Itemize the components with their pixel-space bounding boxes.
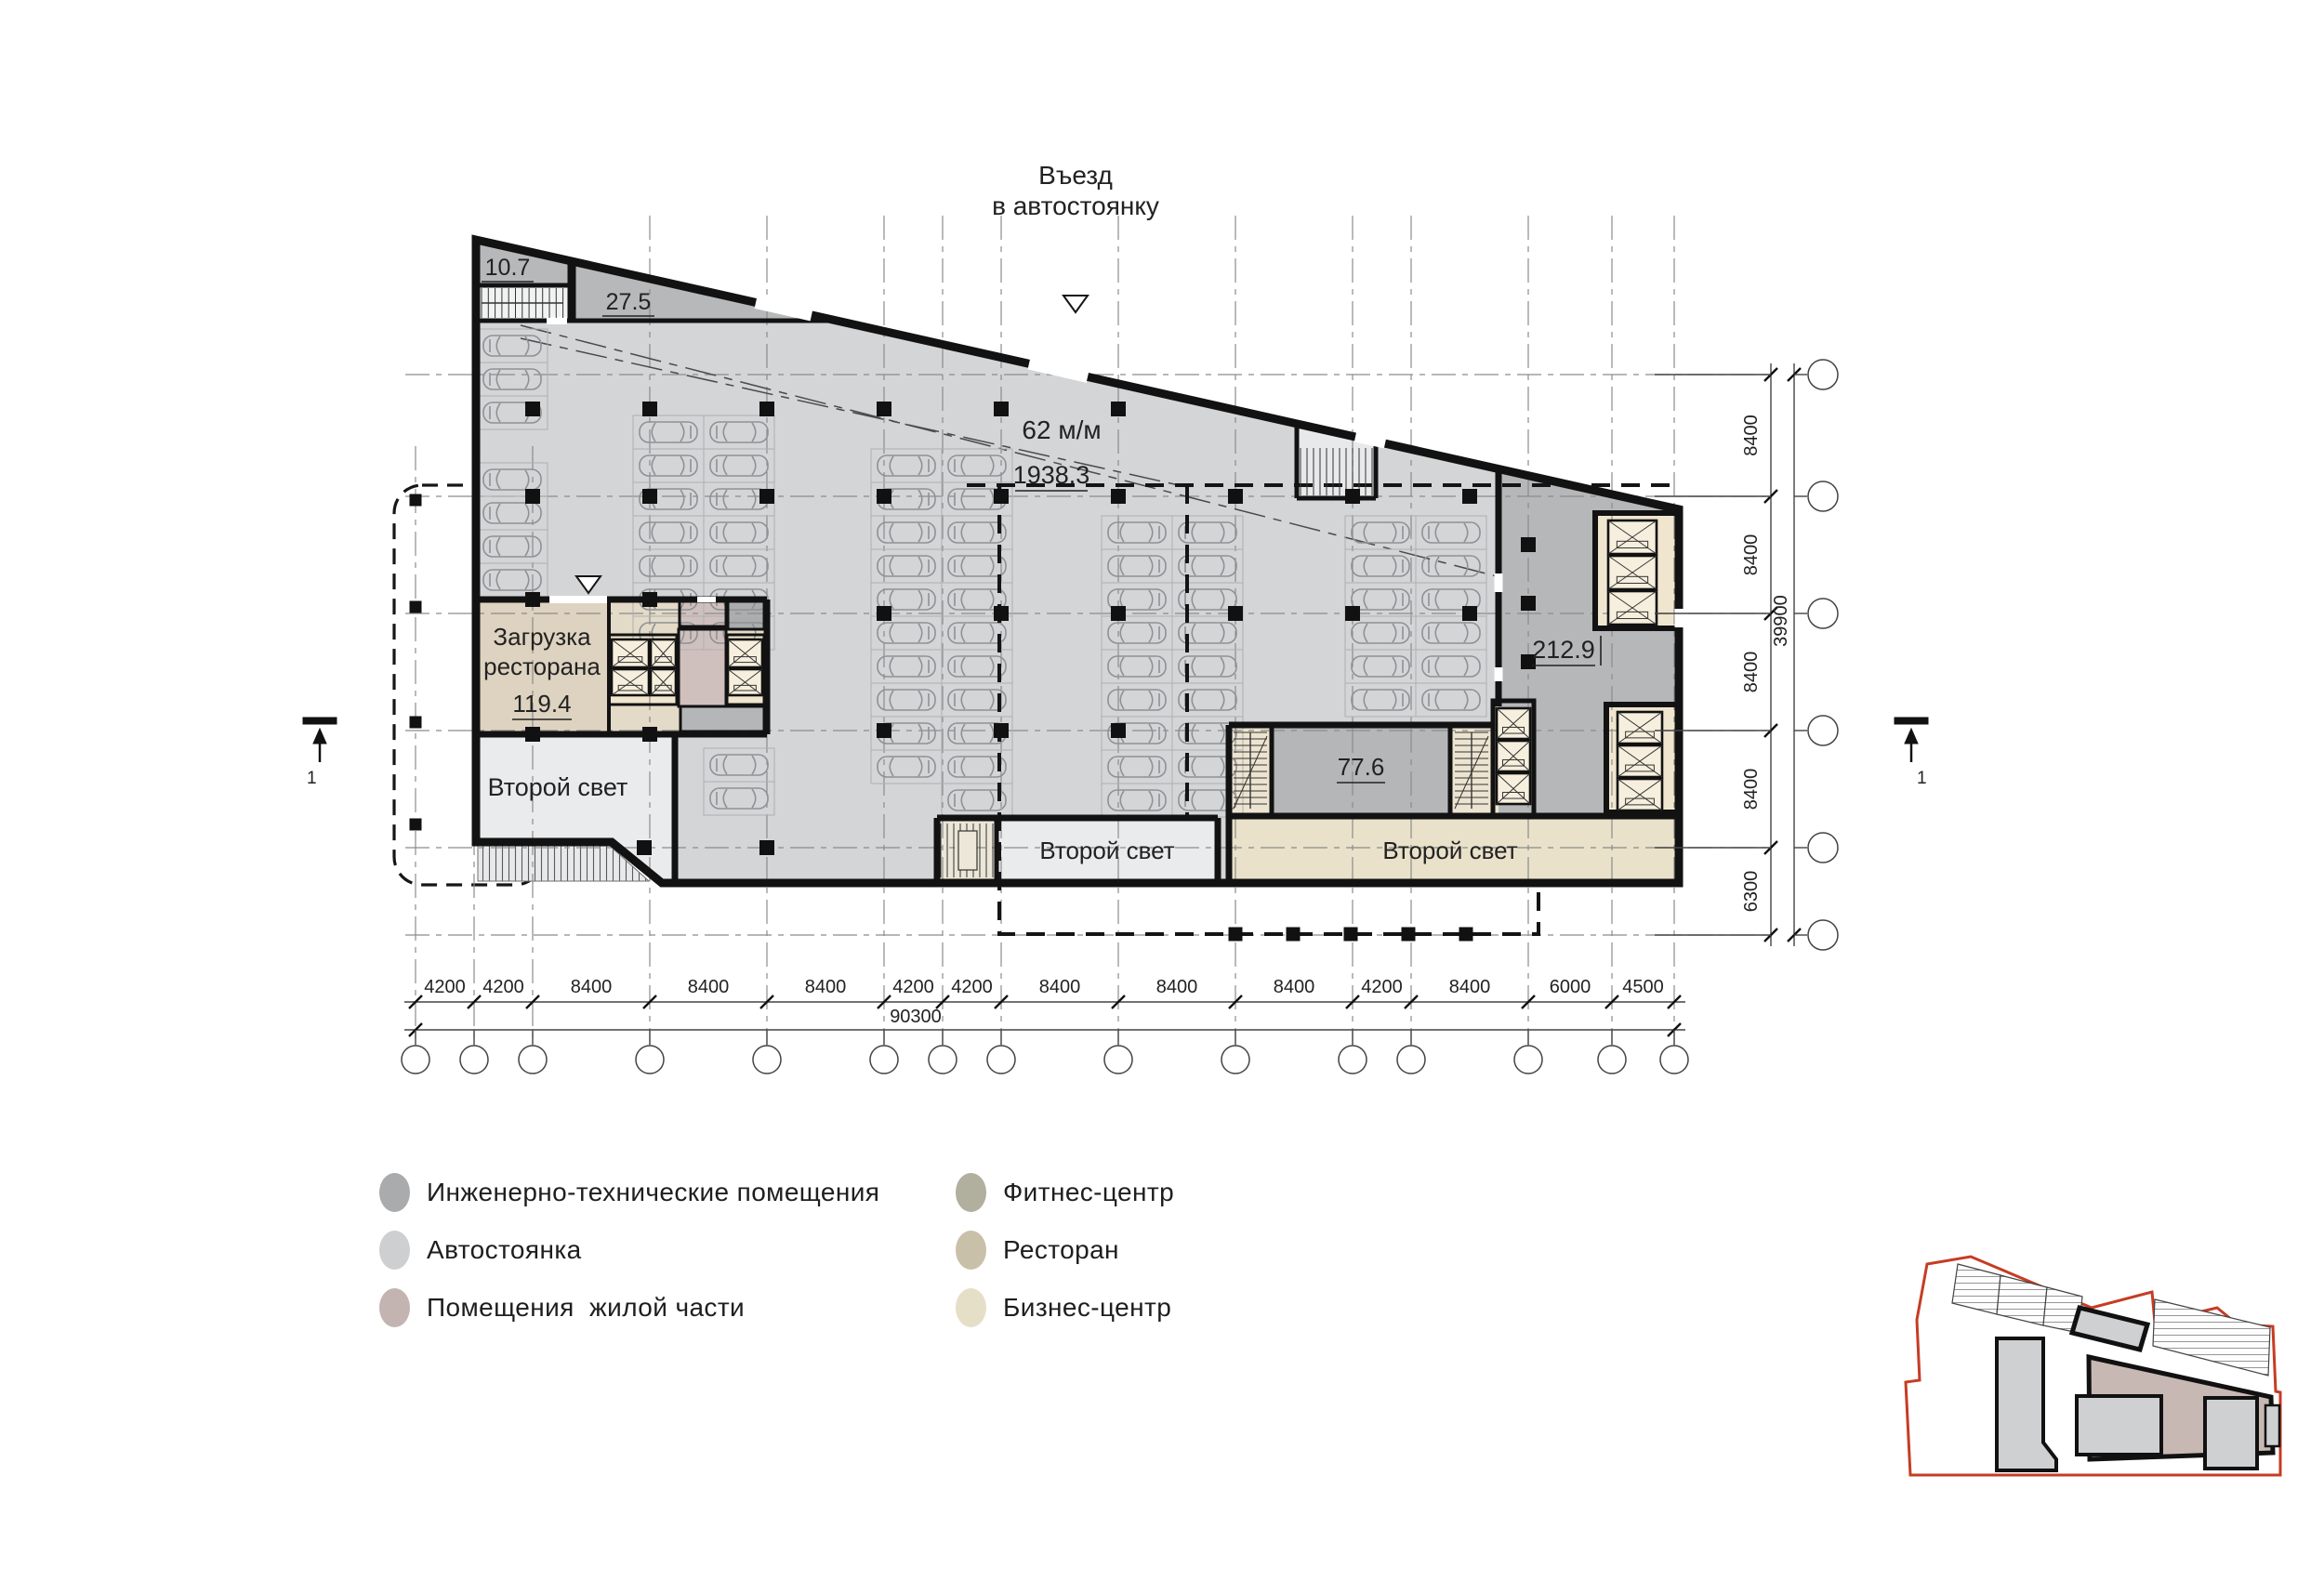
svg-text:39900: 39900: [1771, 595, 1791, 647]
parking-capacity: 62 м/м: [1022, 415, 1101, 444]
entrance-label-2: в автостоянку: [992, 191, 1159, 220]
svg-text:6000: 6000: [1550, 977, 1591, 997]
area-77-6: 77.6: [1338, 753, 1385, 781]
section-marker-1-right: 1: [1917, 769, 1927, 788]
floor-plan-sheet: Въезд в автостоянку 10.7 27.5 62 м/м 193…: [0, 0, 2324, 1581]
loading-area-value: 119.4: [512, 690, 571, 718]
svg-text:6300: 6300: [1741, 871, 1762, 913]
core-gray-room-a: [728, 599, 764, 629]
loading-label: Загрузка: [493, 623, 591, 651]
svg-text:8400: 8400: [1039, 977, 1081, 997]
floor-plan-drawing: Въезд в автостоянку 10.7 27.5 62 м/м 193…: [0, 0, 2324, 1581]
svg-text:8400: 8400: [1741, 534, 1762, 576]
svg-text:4200: 4200: [951, 977, 993, 997]
svg-text:90300: 90300: [890, 1007, 942, 1027]
second-light-right-label: Второй свет: [1382, 837, 1517, 864]
second-light-left-label: Второй свет: [488, 773, 628, 801]
svg-text:8400: 8400: [1741, 652, 1762, 693]
area-27-5: 27.5: [606, 289, 652, 315]
section-marker-1-left: 1: [307, 769, 317, 788]
svg-text:4200: 4200: [482, 977, 524, 997]
core-residential-room-b: [679, 629, 726, 706]
svg-text:8400: 8400: [1274, 977, 1315, 997]
entrance-label: Въезд: [1038, 161, 1113, 190]
second-light-mid-label: Второй свет: [1039, 837, 1174, 864]
svg-text:8400: 8400: [1156, 977, 1198, 997]
svg-text:8400: 8400: [1741, 769, 1762, 810]
core-gray-room-b: [680, 706, 764, 731]
loading-label-2: ресторана: [483, 652, 601, 680]
svg-text:8400: 8400: [805, 977, 847, 997]
parking-area-value: 1938.3: [1013, 461, 1090, 489]
svg-text:8400: 8400: [571, 977, 613, 997]
svg-text:4500: 4500: [1622, 977, 1664, 997]
svg-text:8400: 8400: [1741, 415, 1762, 456]
area-212-9: 212.9: [1532, 636, 1595, 664]
svg-text:4200: 4200: [424, 977, 466, 997]
svg-text:8400: 8400: [688, 977, 730, 997]
area-10-7: 10.7: [485, 255, 531, 281]
svg-text:4200: 4200: [1361, 977, 1403, 997]
svg-text:8400: 8400: [1449, 977, 1491, 997]
svg-text:4200: 4200: [892, 977, 934, 997]
